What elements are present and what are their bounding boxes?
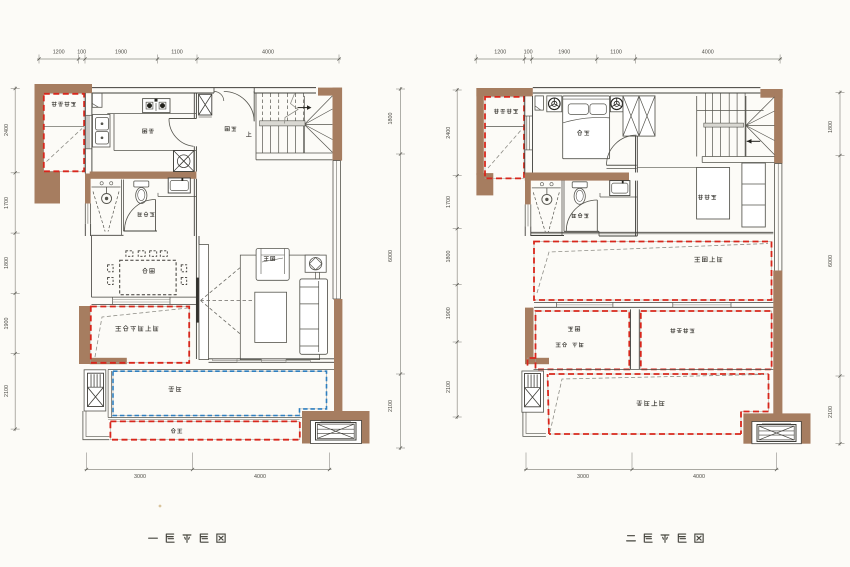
- svg-text:2100: 2100: [4, 385, 10, 397]
- svg-text:1700: 1700: [446, 196, 452, 208]
- svg-text:1800: 1800: [4, 257, 10, 269]
- svg-text:1800: 1800: [828, 121, 834, 133]
- svg-text:1200: 1200: [53, 50, 65, 56]
- svg-text:1900: 1900: [558, 50, 570, 56]
- svg-text:4000: 4000: [262, 50, 274, 56]
- svg-text:1100: 1100: [171, 50, 183, 56]
- svg-text:2100: 2100: [388, 400, 394, 412]
- svg-text:3000: 3000: [134, 474, 146, 480]
- svg-text:1900: 1900: [4, 318, 10, 330]
- svg-text:1800: 1800: [446, 251, 452, 263]
- svg-text:1900: 1900: [446, 307, 452, 319]
- svg-text:1800: 1800: [388, 113, 394, 125]
- svg-text:1700: 1700: [4, 197, 10, 209]
- svg-text:2400: 2400: [446, 127, 452, 139]
- svg-text:6000: 6000: [388, 250, 394, 262]
- svg-text:100: 100: [77, 50, 86, 56]
- svg-text:2400: 2400: [4, 124, 10, 136]
- svg-text:1900: 1900: [115, 50, 127, 56]
- svg-text:2100: 2100: [446, 381, 452, 393]
- svg-text:3000: 3000: [577, 474, 589, 480]
- svg-text:4000: 4000: [702, 50, 714, 56]
- svg-text:2100: 2100: [828, 406, 834, 418]
- svg-text:1200: 1200: [494, 50, 506, 56]
- svg-text:6000: 6000: [828, 255, 834, 267]
- svg-text:100: 100: [524, 50, 533, 56]
- svg-text:4000: 4000: [254, 474, 266, 480]
- svg-text:1100: 1100: [610, 50, 622, 56]
- svg-text:4000: 4000: [693, 474, 705, 480]
